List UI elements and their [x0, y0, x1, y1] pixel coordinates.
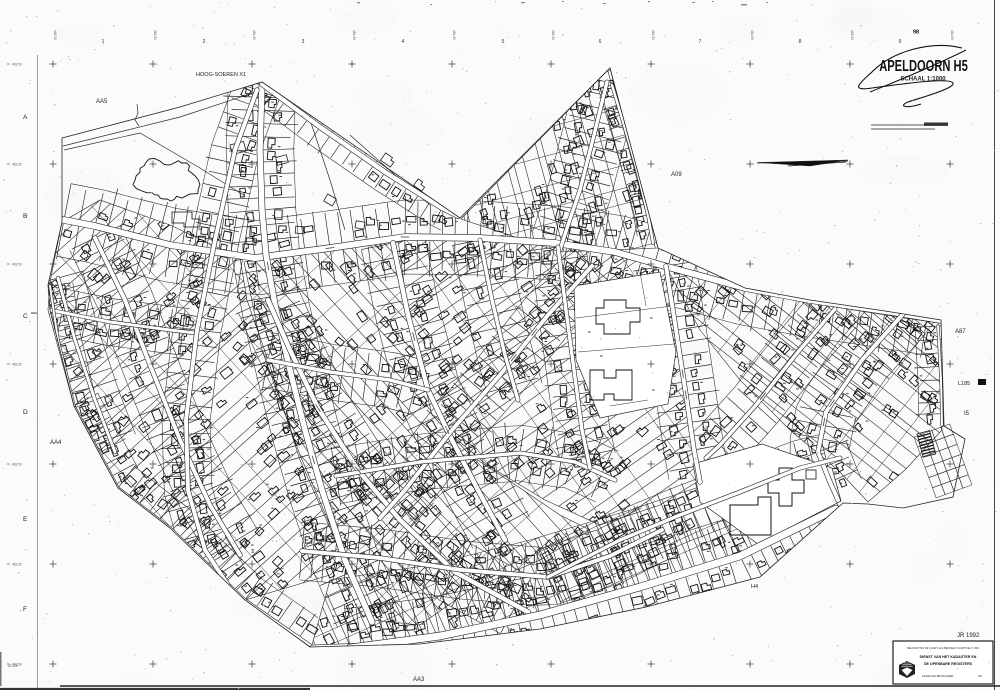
svg-text:A87: A87 [955, 329, 966, 335]
svg-text:DE OPENBARE REGISTERS: DE OPENBARE REGISTERS [924, 662, 973, 666]
svg-text:AA4: AA4 [50, 440, 62, 446]
svg-text:F: F [23, 606, 27, 613]
svg-text:7: 7 [699, 39, 702, 45]
svg-text:461.50: 461.50 [53, 30, 57, 40]
svg-text:4: 4 [402, 39, 405, 45]
svg-text:E: E [23, 516, 28, 523]
svg-text:463.50: 463.50 [12, 63, 22, 67]
svg-text:461.50: 461.50 [153, 30, 157, 40]
svg-text:B: B [23, 213, 27, 220]
svg-text:BEHOORT BIJ DE KAART ALS BEDOE: BEHOORT BIJ DE KAART ALS BEDOELD IN ARTI… [907, 646, 979, 650]
svg-text:463.50: 463.50 [12, 263, 22, 267]
svg-text:461.50: 461.50 [850, 30, 854, 40]
svg-text:463.50: 463.50 [12, 163, 22, 167]
svg-text:I5: I5 [964, 411, 970, 417]
svg-text:L185: L185 [958, 381, 970, 387]
svg-text:461.50: 461.50 [950, 30, 954, 40]
svg-text:NR: NR [978, 674, 982, 678]
svg-text:461.50: 461.50 [750, 30, 754, 40]
svg-text:A: A [23, 114, 28, 121]
svg-text:8: 8 [799, 39, 802, 45]
svg-text:AA5: AA5 [96, 99, 108, 105]
svg-text:D: D [23, 409, 28, 416]
svg-text:A09: A09 [671, 172, 682, 178]
svg-text:463.50: 463.50 [12, 463, 22, 467]
svg-text:2: 2 [203, 39, 206, 45]
svg-text:JR 1992: JR 1992 [957, 633, 980, 639]
svg-text:APELDOORN H5: APELDOORN H5 [879, 57, 968, 74]
svg-text:41.2/4: 41.2/4 [8, 664, 18, 668]
svg-text:AA3: AA3 [413, 677, 425, 683]
svg-text:461.50: 461.50 [651, 30, 655, 40]
svg-text:461.50: 461.50 [551, 30, 555, 40]
svg-text:6: 6 [599, 39, 602, 45]
svg-text:463.50: 463.50 [12, 563, 22, 567]
svg-text:5: 5 [502, 39, 505, 45]
svg-text:C: C [23, 313, 28, 320]
svg-text:9: 9 [899, 39, 902, 45]
svg-text:GEZIEN DE BEWAARDER: GEZIEN DE BEWAARDER [922, 674, 953, 678]
svg-text:3: 3 [302, 39, 305, 45]
svg-text:461.50: 461.50 [252, 30, 256, 40]
svg-text:HOOG-SOEREN X1: HOOG-SOEREN X1 [196, 72, 246, 78]
svg-text:98: 98 [913, 30, 919, 36]
svg-text:461.50: 461.50 [352, 30, 356, 40]
svg-text:463.50: 463.50 [12, 363, 22, 367]
svg-text:DIENST VAN HET KADASTER EN: DIENST VAN HET KADASTER EN [920, 655, 977, 659]
svg-text:461.50: 461.50 [452, 30, 456, 40]
svg-text:H4: H4 [751, 584, 758, 590]
